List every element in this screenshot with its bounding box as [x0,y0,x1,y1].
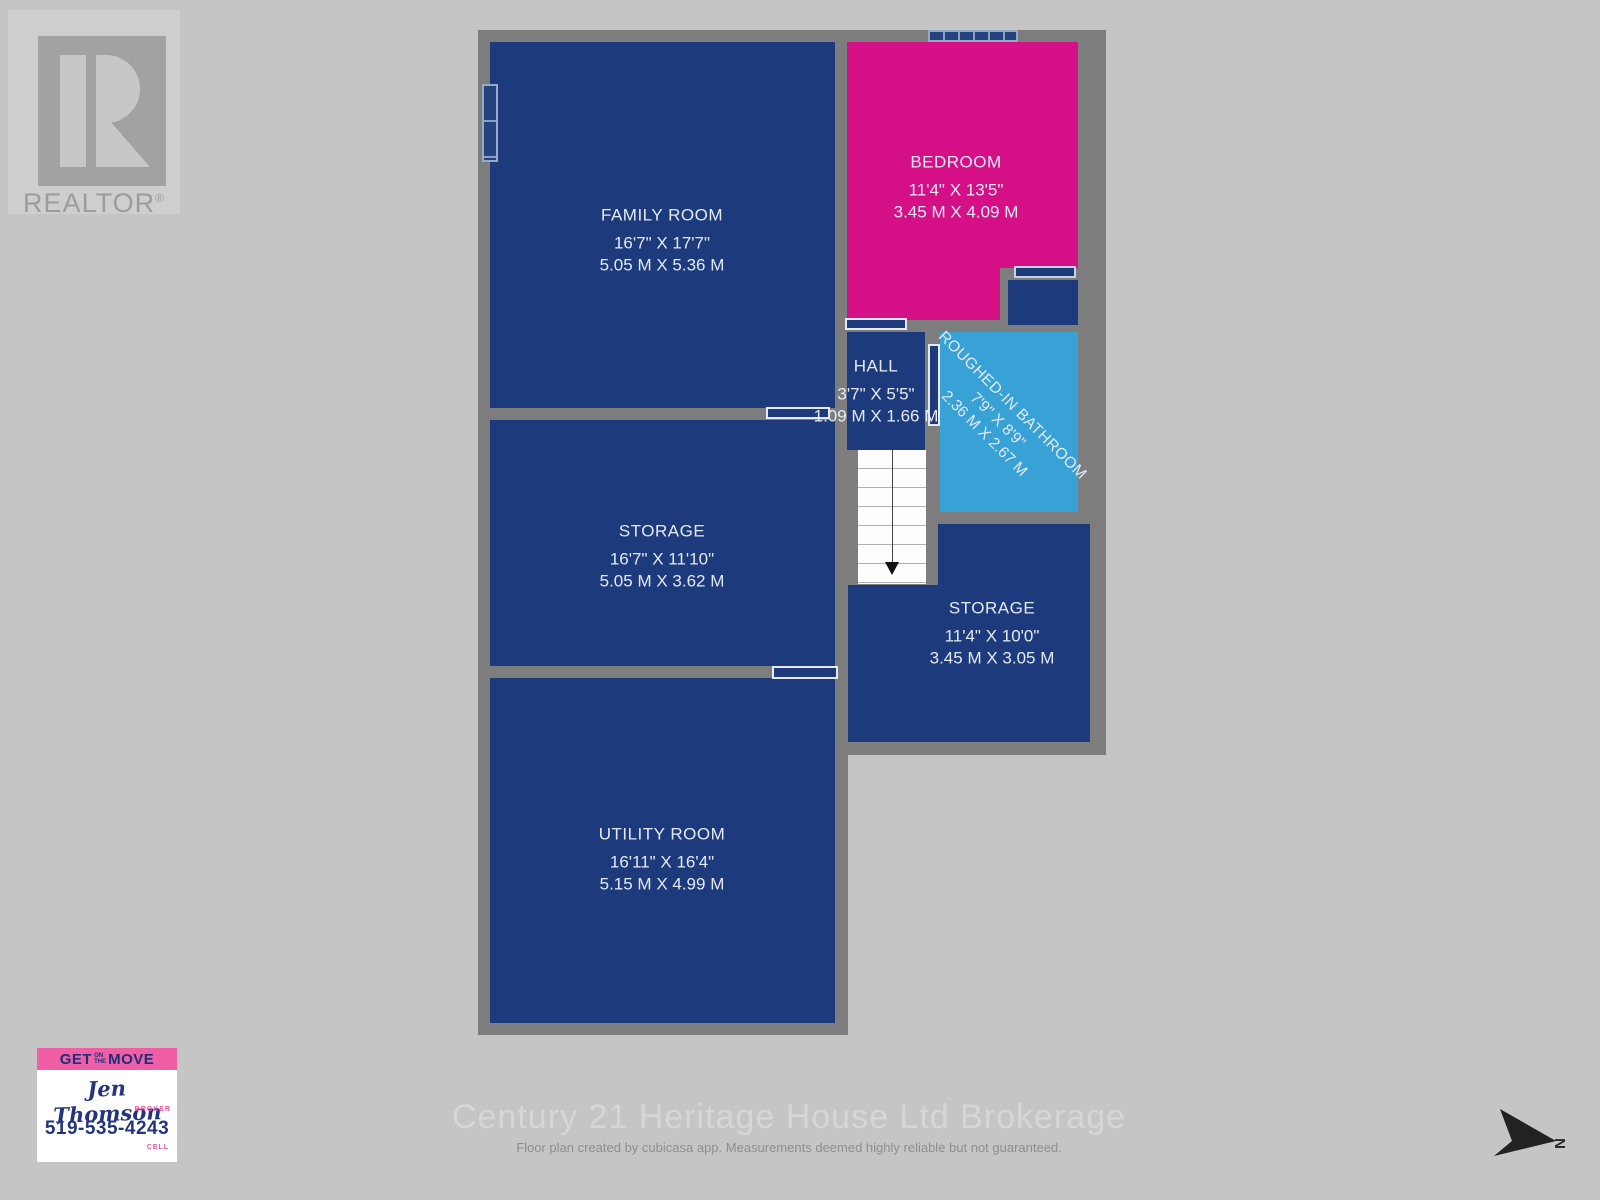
window-family-room-icon [482,84,498,162]
door-closet-icon [1014,266,1076,278]
realtor-wordmark: REALTOR® [8,188,180,219]
banner-onthe: ON THE [94,1053,106,1065]
door-bedroom-icon [845,318,907,330]
north-label: N [1551,1138,1568,1149]
label-storage-left: STORAGE 16'7" X 11'10" 5.05 M X 3.62 M [600,522,725,593]
brokerage-name: Century 21 Heritage House Ltd Brokerage [0,1098,1578,1137]
door-storage-utility-icon [772,666,838,679]
registered-mark: ® [155,191,165,205]
label-utility-room: UTILITY ROOM 16'11" X 16'4" 5.15 M X 4.9… [599,825,726,896]
banner-get: GET [60,1051,92,1068]
staircase [858,450,926,584]
agent-body: Jen Thomson BROKER 519-535-4243 CELL [37,1070,177,1162]
agent-title: BROKER [135,1106,171,1113]
agent-banner: GET ON THE MOVE [37,1048,177,1070]
label-bedroom: BEDROOM 11'4" X 13'5" 3.45 M X 4.09 M [894,153,1019,224]
wall-closet-side [1000,268,1008,325]
floorplan-page: REALTOR® FAMILY ROOM 16'7" X 17'7" 5.05 … [0,0,1600,1200]
disclaimer-text: Floor plan created by cubicasa app. Meas… [0,1140,1578,1155]
stair-down-arrow-icon [885,562,899,575]
agent-card: GET ON THE MOVE Jen Thomson BROKER 519-5… [37,1048,177,1162]
room-open-area [848,585,938,742]
realtor-r-icon [38,36,166,186]
realtor-logo: REALTOR® [8,10,180,214]
north-arrow-icon [1468,1095,1578,1170]
label-family-room: FAMILY ROOM 16'7" X 17'7" 5.05 M X 5.36 … [600,206,725,277]
agent-phone-label: CELL [147,1144,169,1151]
room-closet [1008,280,1078,325]
north-arrow: N [1468,1095,1578,1170]
agent-phone: 519-535-4243 [37,1118,177,1140]
label-storage-right: STORAGE 11'4" X 10'0" 3.45 M X 3.05 M [930,599,1055,670]
window-bedroom-icon [928,30,1018,42]
banner-move: MOVE [108,1051,154,1068]
stair-direction-line [892,450,893,568]
